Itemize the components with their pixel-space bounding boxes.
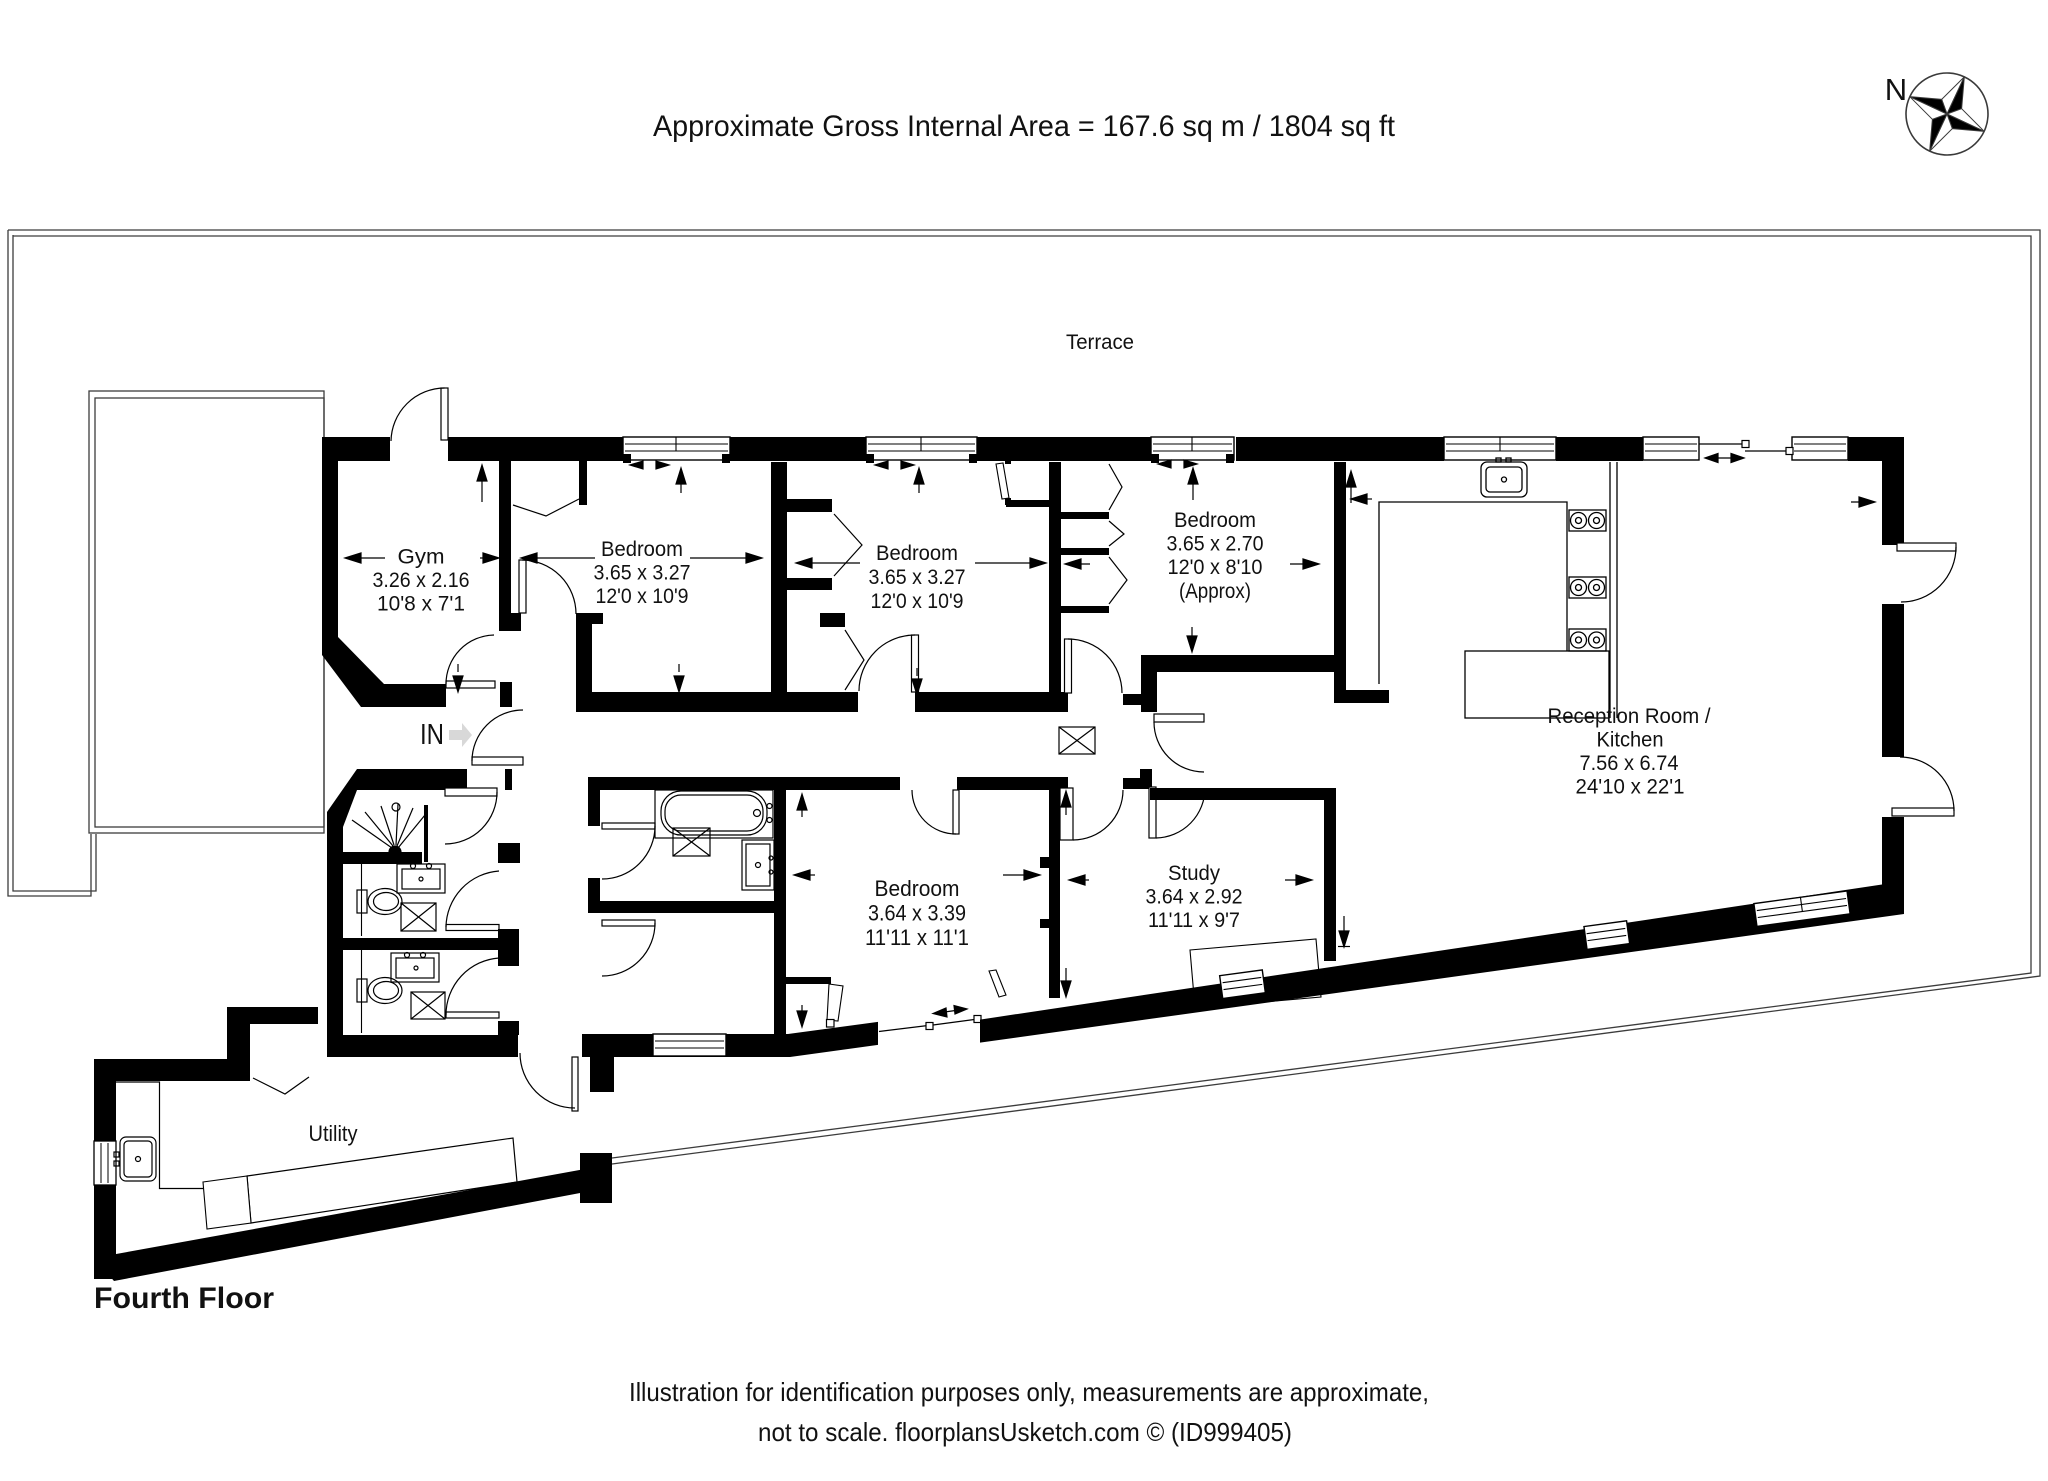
svg-text:Approximate Gross Internal Are: Approximate Gross Internal Area = 167.6 …: [653, 110, 1396, 143]
svg-text:Bedroom: Bedroom: [875, 876, 960, 901]
svg-text:12'0 x 10'9: 12'0 x 10'9: [871, 590, 964, 613]
svg-text:3.64 x 3.39: 3.64 x 3.39: [868, 901, 966, 926]
svg-text:IN: IN: [420, 719, 444, 751]
svg-text:3.65 x 2.70: 3.65 x 2.70: [1167, 533, 1264, 556]
svg-text:3.26 x 2.16: 3.26 x 2.16: [373, 569, 470, 592]
svg-text:Study: Study: [1168, 862, 1220, 885]
svg-text:Fourth Floor: Fourth Floor: [94, 1282, 274, 1315]
svg-text:12'0 x 10'9: 12'0 x 10'9: [596, 585, 689, 608]
svg-text:Bedroom: Bedroom: [601, 538, 683, 561]
svg-text:Utility: Utility: [309, 1121, 358, 1146]
svg-text:Bedroom: Bedroom: [876, 542, 958, 565]
svg-text:Bedroom: Bedroom: [1174, 509, 1256, 532]
svg-text:Kitchen: Kitchen: [1597, 729, 1664, 752]
svg-text:N: N: [1885, 72, 1907, 107]
svg-text:(Approx): (Approx): [1179, 580, 1251, 603]
svg-text:not to scale. floorplansUsketc: not to scale. floorplansUsketch.com © (I…: [758, 1417, 1292, 1447]
svg-text:12'0 x 8'10: 12'0 x 8'10: [1168, 556, 1263, 579]
svg-text:Illustration for identificatio: Illustration for identification purposes…: [629, 1377, 1429, 1407]
svg-text:10'8 x 7'1: 10'8 x 7'1: [377, 593, 465, 616]
svg-text:Gym: Gym: [398, 546, 445, 569]
svg-text:Reception Room /: Reception Room /: [1548, 705, 1711, 728]
svg-text:24'10 x 22'1: 24'10 x 22'1: [1576, 776, 1685, 799]
svg-text:3.64 x 2.92: 3.64 x 2.92: [1146, 886, 1243, 909]
svg-text:7.56 x 6.74: 7.56 x 6.74: [1580, 752, 1679, 775]
svg-text:Terrace: Terrace: [1066, 331, 1134, 354]
svg-text:3.65 x 3.27: 3.65 x 3.27: [869, 566, 966, 589]
svg-text:11'11 x 9'7: 11'11 x 9'7: [1148, 909, 1240, 932]
svg-text:3.65 x 3.27: 3.65 x 3.27: [594, 562, 691, 585]
svg-text:11'11 x 11'1: 11'11 x 11'1: [865, 925, 969, 950]
